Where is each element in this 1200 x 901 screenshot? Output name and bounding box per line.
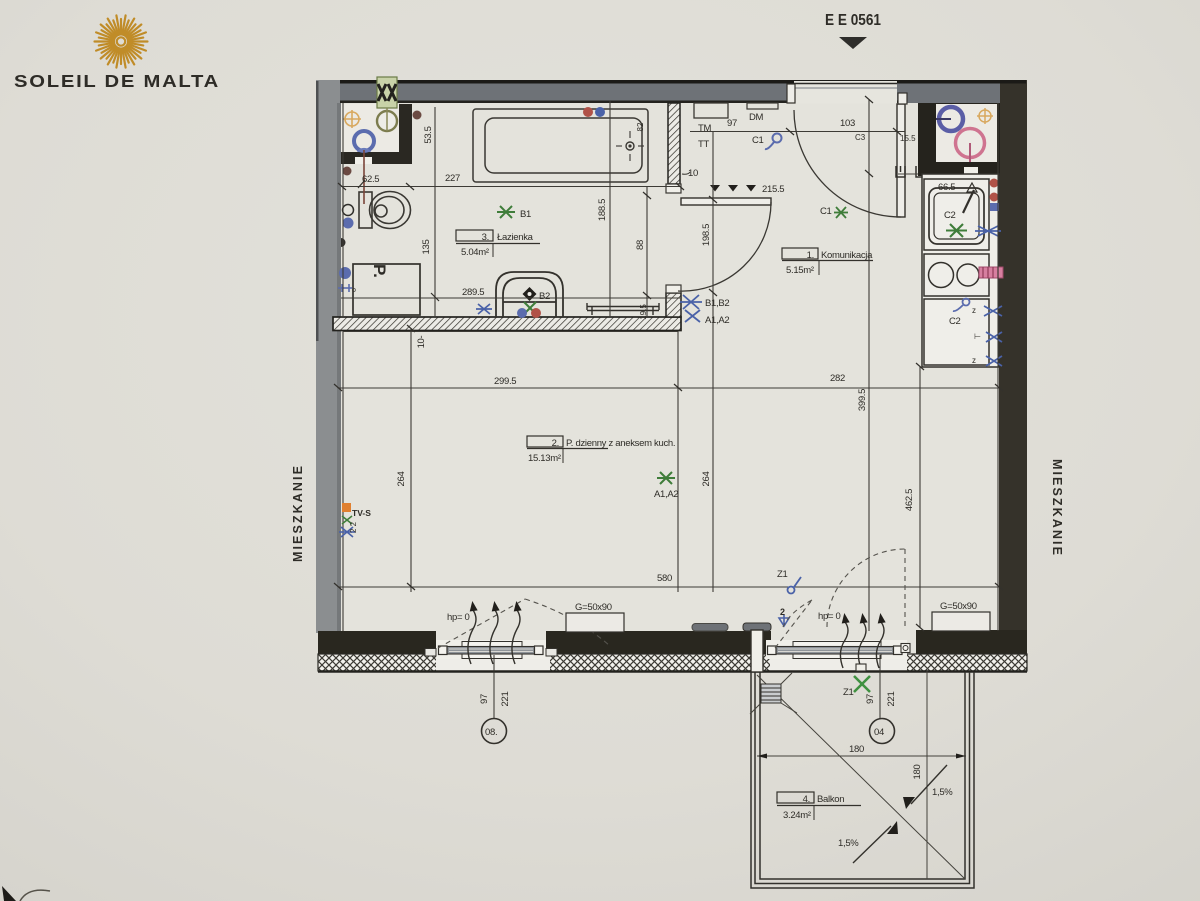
svg-text:289.5: 289.5 xyxy=(462,287,484,298)
svg-text:198.5: 198.5 xyxy=(701,224,712,246)
svg-text:82: 82 xyxy=(636,122,645,131)
svg-text:G=50x90: G=50x90 xyxy=(575,602,612,613)
svg-text:Łazienka: Łazienka xyxy=(497,232,534,243)
svg-text:P. dzienny z aneksem kuch.: P. dzienny z aneksem kuch. xyxy=(566,438,675,449)
svg-text:MIESZKANIE: MIESZKANIE xyxy=(291,464,305,562)
svg-text:C1: C1 xyxy=(820,206,832,217)
svg-text:MIESZKANIE: MIESZKANIE xyxy=(1050,459,1064,557)
svg-text:15.13m²: 15.13m² xyxy=(528,453,561,464)
svg-text:264: 264 xyxy=(701,472,712,487)
svg-text:215.5: 215.5 xyxy=(762,184,784,195)
svg-text:188.5: 188.5 xyxy=(597,199,608,221)
svg-text:88: 88 xyxy=(635,240,646,250)
svg-text:5.15m²: 5.15m² xyxy=(786,265,814,276)
svg-text:C3: C3 xyxy=(855,133,866,142)
svg-text:SOLEIL DE MALTA: SOLEIL DE MALTA xyxy=(14,71,220,91)
svg-text:97: 97 xyxy=(865,694,876,704)
svg-text:299.5: 299.5 xyxy=(494,376,516,387)
svg-text:DM: DM xyxy=(749,112,764,123)
svg-text:180: 180 xyxy=(849,744,864,755)
svg-text:264: 264 xyxy=(396,472,407,487)
svg-text:TT: TT xyxy=(698,139,710,150)
svg-text:10: 10 xyxy=(688,168,698,179)
svg-text:A1,A2: A1,A2 xyxy=(654,489,678,500)
svg-text:C2: C2 xyxy=(949,316,961,327)
svg-text:580: 580 xyxy=(657,573,672,584)
svg-text:z: z xyxy=(972,306,976,315)
svg-text:10-: 10- xyxy=(416,335,427,348)
svg-text:P.: P. xyxy=(370,264,389,278)
svg-text:221: 221 xyxy=(886,692,897,707)
svg-text:hp= 0: hp= 0 xyxy=(818,611,841,622)
svg-text:97: 97 xyxy=(479,694,490,704)
svg-text:53.5: 53.5 xyxy=(423,126,434,143)
svg-text:2.: 2. xyxy=(552,438,559,449)
svg-text:103: 103 xyxy=(840,118,855,129)
svg-text:Z1: Z1 xyxy=(777,569,788,580)
svg-text:Z1: Z1 xyxy=(843,687,854,698)
svg-text:4.: 4. xyxy=(803,794,810,805)
svg-text:5.04m²: 5.04m² xyxy=(461,247,489,258)
svg-text:Komunikacja: Komunikacja xyxy=(821,250,873,261)
svg-text:1,5%: 1,5% xyxy=(838,838,859,849)
svg-text:1.: 1. xyxy=(807,250,814,261)
svg-text:G=50x90: G=50x90 xyxy=(940,601,977,612)
svg-text:2 2: 2 2 xyxy=(349,521,358,533)
svg-text:B1: B1 xyxy=(520,209,531,220)
svg-text:TM: TM xyxy=(698,123,712,134)
svg-text:66.5: 66.5 xyxy=(938,182,955,193)
svg-text:hp= 0: hp= 0 xyxy=(447,612,470,623)
svg-text:282: 282 xyxy=(830,373,845,384)
svg-text:A1,A2: A1,A2 xyxy=(705,315,729,326)
svg-text:1,5%: 1,5% xyxy=(932,787,953,798)
svg-text:462.5: 462.5 xyxy=(904,489,915,511)
svg-text:E E 0561: E E 0561 xyxy=(825,12,881,29)
svg-text:TV-S: TV-S xyxy=(352,508,371,518)
svg-text:221: 221 xyxy=(500,692,511,707)
svg-text:15.5: 15.5 xyxy=(900,134,916,143)
svg-text:399.5: 399.5 xyxy=(857,389,868,411)
svg-text:B1,B2: B1,B2 xyxy=(705,298,729,309)
svg-text:227: 227 xyxy=(445,173,460,184)
svg-text:3.: 3. xyxy=(482,232,489,243)
svg-text:08.: 08. xyxy=(485,727,497,738)
svg-text:Balkon: Balkon xyxy=(817,794,844,805)
svg-text:⊢: ⊢ xyxy=(974,332,981,341)
svg-text:62.5: 62.5 xyxy=(362,174,379,185)
svg-text:97: 97 xyxy=(727,118,737,129)
svg-text:180: 180 xyxy=(912,765,923,780)
svg-text:B2: B2 xyxy=(539,291,550,302)
svg-text:C2: C2 xyxy=(944,210,956,221)
svg-text:135: 135 xyxy=(421,240,432,255)
svg-text:C1: C1 xyxy=(752,135,764,146)
svg-text:o: o xyxy=(352,287,356,294)
svg-text:3.24m²: 3.24m² xyxy=(783,810,811,821)
svg-text:z: z xyxy=(972,356,976,365)
svg-text:04: 04 xyxy=(874,727,884,738)
